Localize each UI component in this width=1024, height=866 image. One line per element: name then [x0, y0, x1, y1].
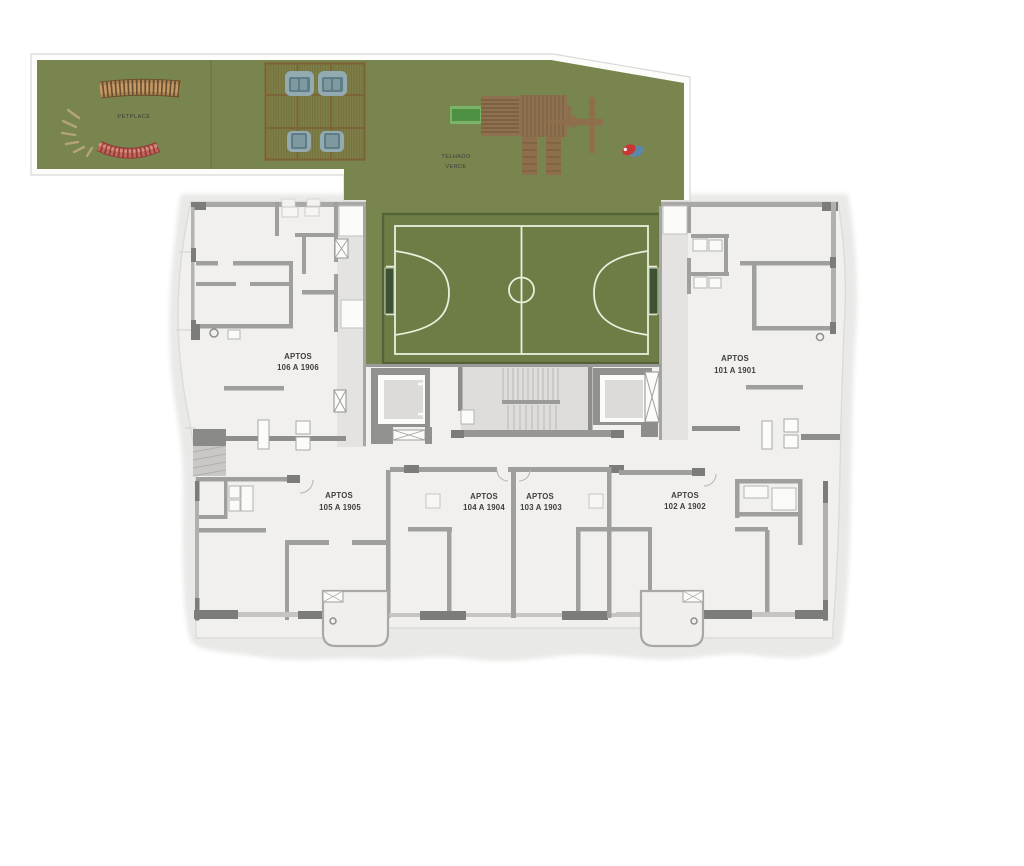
svg-text:APTOS: APTOS — [284, 352, 312, 361]
svg-text:104 A 1904: 104 A 1904 — [463, 503, 505, 512]
svg-text:APTOS: APTOS — [470, 492, 498, 501]
svg-text:VERDE: VERDE — [445, 164, 466, 170]
svg-text:102 A 1902: 102 A 1902 — [664, 502, 706, 511]
svg-text:101 A 1901: 101 A 1901 — [714, 366, 756, 375]
svg-text:APTOS: APTOS — [721, 354, 749, 363]
svg-text:106 A 1906: 106 A 1906 — [277, 363, 319, 372]
svg-text:PETPLACE: PETPLACE — [117, 114, 150, 120]
svg-text:APTOS: APTOS — [325, 491, 353, 500]
svg-text:APTOS: APTOS — [671, 491, 699, 500]
svg-text:105 A 1905: 105 A 1905 — [319, 503, 361, 512]
svg-text:APTOS: APTOS — [526, 492, 554, 501]
svg-text:103 A 1903: 103 A 1903 — [520, 503, 562, 512]
svg-text:TELHADO: TELHADO — [441, 154, 470, 160]
